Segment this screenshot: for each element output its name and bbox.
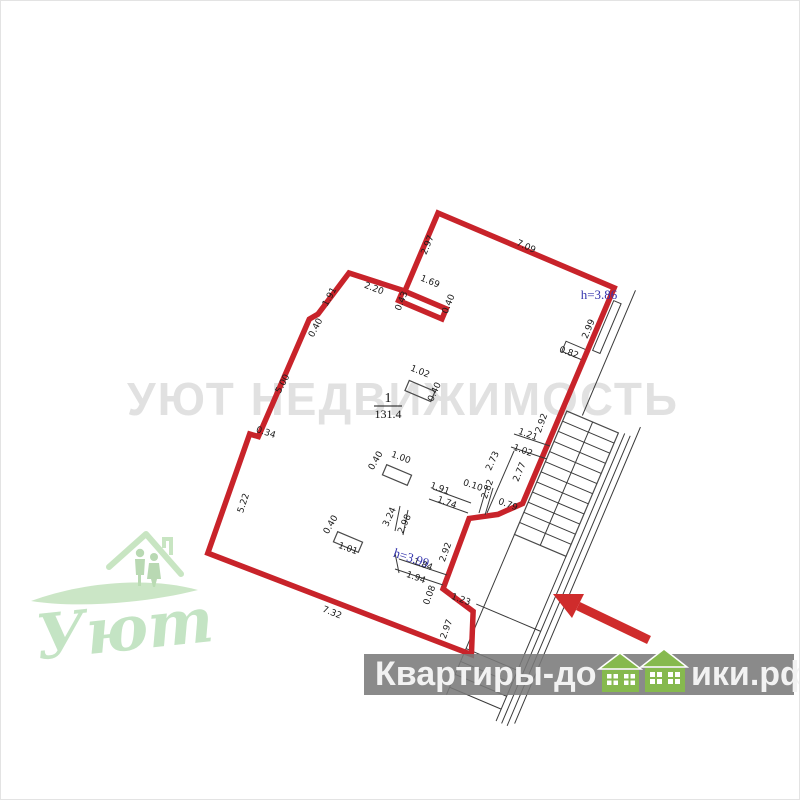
dimension-label: 2.73 xyxy=(484,450,502,472)
dimension-label: 7.09 xyxy=(515,239,538,256)
arrow-shaft xyxy=(578,606,649,640)
uyut-logo: Уют xyxy=(31,534,217,674)
floorplan-rotated-group xyxy=(184,173,689,728)
logo-people-icon xyxy=(135,549,161,587)
dimension-label: 2.77 xyxy=(512,461,529,483)
floorplan-svg: УЮТ НЕДВИЖИМОСТЬ Уют xyxy=(1,1,800,800)
dimension-label: 1.94 xyxy=(405,570,428,586)
dimension-label: 0.40 xyxy=(441,293,458,316)
room-number: 1 xyxy=(385,391,392,406)
portal-banner: Квартиры-до ики.рф xyxy=(364,649,800,695)
dimension-label: 0.40 xyxy=(322,514,341,537)
dimension-label: 1.02 xyxy=(512,443,534,459)
banner-text-right: ики.рф xyxy=(691,655,800,693)
column-2 xyxy=(382,465,411,486)
dimension-label: 0.10 xyxy=(462,478,484,494)
dimension-label: 1.23 xyxy=(450,592,472,608)
height-label: h=3.86 xyxy=(581,287,618,302)
dimension-label: 2.97 xyxy=(439,618,455,640)
dimension-label: 1.01 xyxy=(337,541,359,557)
dimension-label: 5.22 xyxy=(236,492,252,514)
dimension-label: 2.97 xyxy=(420,234,437,256)
dimension-label: 1.91 xyxy=(321,286,339,308)
room-area: 131.4 xyxy=(375,407,402,421)
dimension-label: 0.08 xyxy=(422,584,438,607)
banner-text-left: Квартиры-до xyxy=(375,655,596,693)
dimension-label: 1.00 xyxy=(390,450,413,466)
dimension-label: 0.43 xyxy=(394,290,411,312)
floorplan-image: УЮТ НЕДВИЖИМОСТЬ Уют xyxy=(0,0,800,800)
dimension-label: 2.98 xyxy=(396,513,414,536)
red-arrow-icon xyxy=(553,594,649,640)
dimension-label: 0.82 xyxy=(558,345,580,361)
watermark-text: УЮТ НЕДВИЖИМОСТЬ xyxy=(127,373,679,425)
dimension-label: 0.40 xyxy=(367,450,386,473)
dimension-label: 1.69 xyxy=(419,274,442,291)
dimension-label: 7.32 xyxy=(321,605,343,622)
